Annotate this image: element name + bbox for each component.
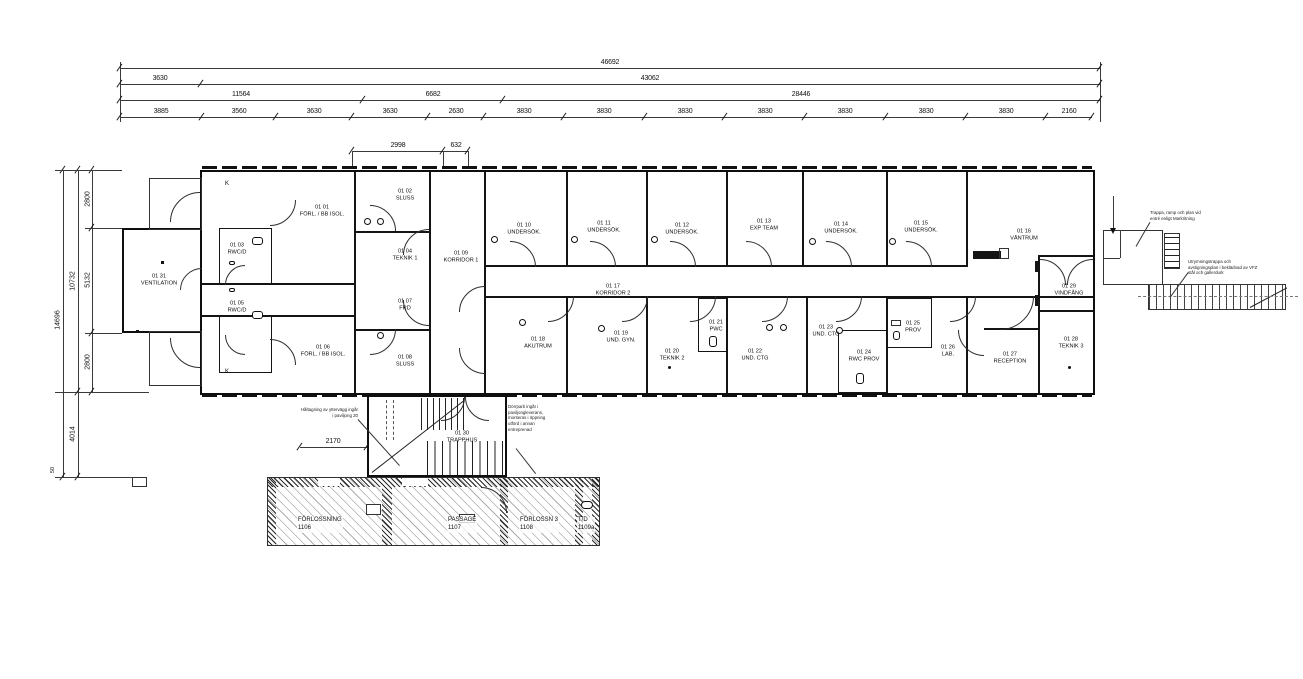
room-name: PROV [905, 328, 921, 335]
room-name: TEKNIK 1 [393, 256, 418, 263]
sink-icon [889, 238, 896, 245]
wall [646, 298, 648, 393]
annotation-door-section: Dörrparti ingår i paviljongleverans, mon… [508, 404, 550, 433]
room-name: UNDERSÖK. [665, 230, 698, 237]
wall [646, 172, 648, 267]
annotation-entry-ramp: Trappa, ramp och plan vid entré enligt M… [1150, 210, 1208, 221]
room-name: VINDFÅNG [1055, 291, 1084, 298]
room-name: FÖRL. / BB ISOL. [301, 352, 345, 359]
room-label-0120: 01 20TEKNIK 2 [660, 349, 685, 364]
sink-icon [766, 324, 773, 331]
wall [806, 298, 808, 393]
room-number: 01 04 [393, 249, 418, 256]
dimension-label: 3830 [517, 108, 532, 115]
dimension-label: 2800 [85, 191, 92, 207]
dimension-label: 3885 [154, 108, 169, 115]
room-number: 01 23 [812, 325, 839, 332]
room-name: UNDERSÖK. [507, 230, 540, 237]
dimension-label: 3630 [153, 75, 168, 82]
dimension-label: 14696 [55, 310, 62, 329]
dimension-label: 28446 [792, 91, 810, 98]
room-number: 01 26 [941, 345, 955, 352]
sink-icon [377, 218, 384, 225]
room-name: UNDERSÖK. [824, 229, 857, 236]
room-number: 01 18 [524, 337, 552, 344]
dimension-label: 3830 [758, 108, 773, 115]
mini-stair-treads [1165, 234, 1179, 268]
dimension-label: 10732 [70, 271, 77, 290]
wall [726, 172, 728, 267]
toilet-icon [893, 331, 900, 340]
stair-dashed-line [393, 400, 394, 440]
dimension-extension [55, 392, 149, 393]
annotation-wall-opening: Håltagning av yttervägg ingår i paviljon… [300, 407, 358, 418]
room-label-0118: 01 18AKUTRUM [524, 337, 552, 352]
room-number: 01 19 [607, 331, 636, 338]
leader-line [516, 448, 536, 474]
wall [566, 172, 568, 267]
room-number: 01 21 [709, 320, 723, 327]
room-label-0104: 01 04TEKNIK 1 [393, 249, 418, 264]
room-name: KORRIDOR 2 [596, 291, 631, 298]
room-number: 01 24 [849, 350, 880, 357]
sink-icon [364, 218, 371, 225]
room-name: LAB. [941, 352, 955, 359]
sink-icon [229, 261, 235, 265]
room-label-0105: 01 05RWC/D [228, 301, 247, 316]
dimension-label: 2170 [326, 438, 341, 445]
vent-marker-icon [136, 330, 139, 333]
room-name: RECEPTION [994, 359, 1027, 366]
existing-wall [267, 477, 276, 546]
room-label-0106: 01 06FÖRL. / BB ISOL. [301, 345, 345, 360]
reception-desk-box [999, 248, 1009, 259]
door-frame [1035, 295, 1039, 306]
room-number: 1109a [578, 525, 594, 533]
room-label-0116: 01 16VÄNTRUM [1010, 229, 1038, 244]
room-label-0102: 01 02SLUSS [396, 189, 414, 204]
floor-drain-icon [1068, 366, 1071, 369]
room-name: FÖRL. / BB ISOL. [300, 212, 344, 219]
room-name: UND. CTG [741, 356, 768, 363]
room-label-0107: 01 07FRD [398, 299, 412, 314]
room-number: 1108 [520, 525, 558, 533]
dimension-label: 4014 [70, 426, 77, 442]
dimension-extension [1100, 62, 1101, 122]
room-name: KORRIDOR 1 [444, 258, 479, 265]
room-label-0121: 01 21PWC [709, 320, 723, 335]
legend-box [132, 477, 147, 487]
dimension-extension [85, 333, 122, 334]
room-name: SLUSS [396, 362, 414, 369]
toilet-icon [252, 311, 263, 319]
room-name: TEKNIK 2 [660, 356, 685, 363]
wall [886, 172, 888, 267]
dimension-label: 2630 [449, 108, 464, 115]
room-label-0109: 01 09KORRIDOR 1 [444, 251, 479, 266]
annotation-escape-stair: Utrymningstrappa och avstigningsplan i b… [1188, 259, 1258, 276]
arrow-down-icon [1110, 228, 1116, 234]
arrow-line [1113, 196, 1114, 228]
room-number: 01 22 [741, 349, 768, 356]
room-name: RWC/D [228, 250, 247, 257]
door-frame [1035, 261, 1039, 272]
dimension-tick [1088, 113, 1094, 121]
room-number: 1107 [448, 525, 476, 533]
landing-step-line [1103, 258, 1120, 259]
dimension-label: 11564 [232, 91, 250, 98]
room-number: 01 03 [228, 243, 247, 250]
room-number: 1106 [298, 525, 342, 533]
room-name: VENTILATION [141, 281, 177, 288]
toilet-icon [581, 501, 593, 509]
room-number: 01 08 [396, 355, 414, 362]
room-name: RWC PROV [849, 357, 880, 364]
room-label-0128: 01 28TEKNIK 3 [1059, 337, 1084, 352]
counter-icon [891, 320, 901, 326]
dimension-line [120, 117, 1092, 118]
wall [354, 172, 356, 393]
room-label-0127: 01 27RECEPTION [994, 352, 1027, 367]
reception-desk [973, 251, 1001, 259]
sink-icon [519, 319, 526, 326]
room-name: UNDERSÖK. [904, 228, 937, 235]
room-name: PWC [709, 327, 723, 334]
dimension-label: 6682 [426, 91, 441, 98]
room-label-0130: 01 30TRAPPHUS [447, 431, 477, 446]
room-label-0122: 01 22UND. CTG [741, 349, 768, 364]
room-label-0113: 01 13EXP TEAM [750, 219, 778, 234]
dimension-label: 43062 [641, 75, 659, 82]
wall [429, 172, 431, 393]
dimension-label: 3830 [838, 108, 853, 115]
room-number: 01 05 [228, 301, 247, 308]
room-label-0103: 01 03RWC/D [228, 243, 247, 258]
room-number: 01 09 [444, 251, 479, 258]
room-label-0123: 01 23UND. CTG [812, 325, 839, 340]
room-label-0115: 01 15UNDERSÖK. [904, 221, 937, 236]
room-name: TRAPPHUS [447, 438, 477, 445]
room-label-0101: 01 01FÖRL. / BB ISOL. [300, 205, 344, 220]
room-number: 01 20 [660, 349, 685, 356]
room-name: RWC/D [228, 308, 247, 315]
room-label-0119: 01 19UND. GYN. [607, 331, 636, 346]
sink-icon [780, 324, 787, 331]
room-name: EXP TEAM [750, 226, 778, 233]
dimension-label: 3560 [232, 108, 247, 115]
wall [966, 172, 968, 267]
room-name: FÖRLOSSNING [298, 517, 342, 525]
existing-wall [575, 477, 583, 546]
existing-room-label-1108: FÖRLOSSN 31108 [519, 517, 559, 533]
room-name: FÖRLOSSN 3 [520, 517, 558, 525]
existing-wall-gap [402, 478, 428, 486]
dimension-label: 2800 [85, 354, 92, 370]
stair-dashed-line [386, 400, 387, 440]
room-label-0112: 01 12UNDERSÖK. [665, 223, 698, 238]
wall [1038, 255, 1093, 257]
dimension-label: 3830 [597, 108, 612, 115]
dimension-line [120, 68, 1100, 69]
stair-flight-lower [427, 441, 505, 475]
room-number: 01 27 [994, 352, 1027, 359]
room-name: UND. CTG [812, 332, 839, 339]
dimension-line [78, 170, 79, 477]
existing-wall [267, 477, 600, 487]
dimension-line [120, 84, 1100, 85]
fixture-box [366, 504, 381, 515]
floor-drain-icon [668, 366, 671, 369]
k-marker: K [225, 181, 229, 189]
dimension-extension [55, 477, 132, 478]
wall [984, 328, 1040, 330]
sink-icon [377, 332, 384, 339]
dimension-line [120, 100, 1100, 101]
landing-step-line [1120, 230, 1121, 258]
room-label-0114: 01 14UNDERSÖK. [824, 222, 857, 237]
sink-icon [651, 236, 658, 243]
grating-centerline [1138, 296, 1298, 297]
room-name: UND. GYN. [607, 338, 636, 345]
exterior-wall-segments [202, 166, 1092, 169]
room-number: 01 02 [396, 189, 414, 196]
dimension-extension [55, 170, 122, 171]
dimension-line [300, 447, 367, 448]
k-marker: K [225, 369, 229, 377]
room-label-0129: 01 29VINDFÅNG [1055, 284, 1084, 299]
room-name: TEKNIK 3 [1059, 344, 1084, 351]
room-name: AKUTRUM [524, 344, 552, 351]
room-number: 01 30 [447, 431, 477, 438]
room-label-0111: 01 11UNDERSÖK. [587, 221, 620, 236]
sink-icon [571, 236, 578, 243]
room-label-0117: 01 17KORRIDOR 2 [596, 284, 631, 299]
wall [802, 172, 804, 267]
existing-room-label-1107: PASSAGE1107 [447, 517, 477, 533]
room-number: 01 25 [905, 321, 921, 328]
wall [486, 265, 968, 267]
sink-icon [229, 288, 235, 292]
dimension-line [92, 170, 93, 392]
existing-building-outline [267, 477, 600, 546]
existing-wall-gap [318, 478, 340, 486]
room-number: 01 17 [596, 284, 631, 291]
dimension-label: 5132 [85, 272, 92, 288]
toilet-icon [252, 237, 263, 245]
dimension-extension [85, 228, 122, 229]
dimension-label: 46692 [601, 59, 619, 66]
room-name: T/D [578, 517, 594, 525]
floor-plan-canvas: 46692 3630 43062 11564 6682 28446 3885 3… [0, 0, 1303, 679]
room-name: FRD [398, 306, 412, 313]
dimension-label: 3630 [307, 108, 322, 115]
room-label-0124: 01 24RWC PROV [849, 350, 880, 365]
existing-room-label-1109a: T/D1109a [577, 517, 595, 533]
dimension-line [352, 151, 468, 152]
room-number: 01 13 [750, 219, 778, 226]
dimension-label: 50 [50, 467, 56, 473]
dimension-label: 3830 [678, 108, 693, 115]
wall [1038, 310, 1093, 312]
room-label-0110: 01 10UNDERSÖK. [507, 223, 540, 238]
dimension-label: 2998 [391, 142, 406, 149]
dimension-label: 3830 [919, 108, 934, 115]
wall [1038, 255, 1040, 393]
existing-room-label-1106: FÖRLOSSNING1106 [297, 517, 343, 533]
room-label-0108: 01 08SLUSS [396, 355, 414, 370]
dimension-line [63, 170, 64, 477]
room-label-0126: 01 26LAB. [941, 345, 955, 360]
room-label-0131: 01 31VENTILATION [141, 274, 177, 289]
dimension-label: 3830 [999, 108, 1014, 115]
room-name: VÄNTRUM [1010, 236, 1038, 243]
dimension-label: 3630 [383, 108, 398, 115]
sink-icon [809, 238, 816, 245]
toilet-icon [709, 336, 717, 347]
room-name: PASSAGE [448, 517, 476, 525]
sink-icon [598, 325, 605, 332]
dimension-label: 2160 [1062, 108, 1077, 115]
vent-marker-icon [161, 261, 164, 264]
room-label-0125: 01 25PROV [905, 321, 921, 336]
dimension-label: 632 [450, 142, 461, 149]
room-name: SLUSS [396, 196, 414, 203]
room-name: UNDERSÖK. [587, 228, 620, 235]
existing-wall [382, 477, 392, 546]
sink-icon [491, 236, 498, 243]
room-number: 01 28 [1059, 337, 1084, 344]
room-number: 01 07 [398, 299, 412, 306]
toilet-icon [856, 373, 864, 384]
room-number: 01 31 [141, 274, 177, 281]
existing-wall [592, 477, 600, 546]
